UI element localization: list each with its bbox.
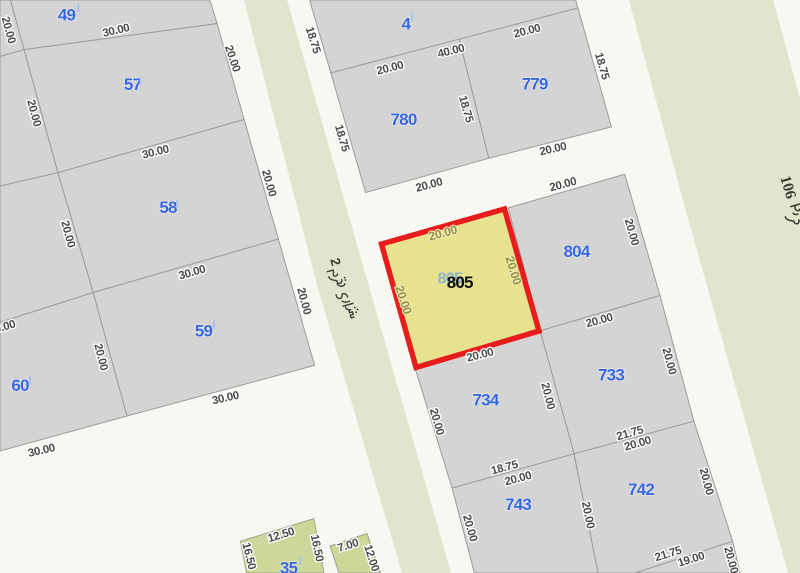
svg-text:57: 57 bbox=[124, 75, 142, 94]
svg-text:805: 805 bbox=[447, 273, 473, 292]
svg-text:742: 742 bbox=[628, 480, 654, 499]
svg-text:59: 59 bbox=[195, 322, 213, 341]
svg-text:58: 58 bbox=[159, 198, 177, 217]
svg-text:734: 734 bbox=[473, 391, 500, 410]
svg-text:35: 35 bbox=[280, 559, 298, 573]
svg-text:733: 733 bbox=[598, 366, 624, 385]
svg-text:804: 804 bbox=[564, 242, 591, 261]
svg-text:779: 779 bbox=[522, 75, 548, 94]
svg-text:60: 60 bbox=[11, 376, 29, 395]
svg-text:4: 4 bbox=[402, 15, 412, 34]
svg-text:743: 743 bbox=[505, 495, 531, 514]
svg-text:49: 49 bbox=[58, 6, 76, 25]
svg-text:780: 780 bbox=[391, 110, 417, 129]
